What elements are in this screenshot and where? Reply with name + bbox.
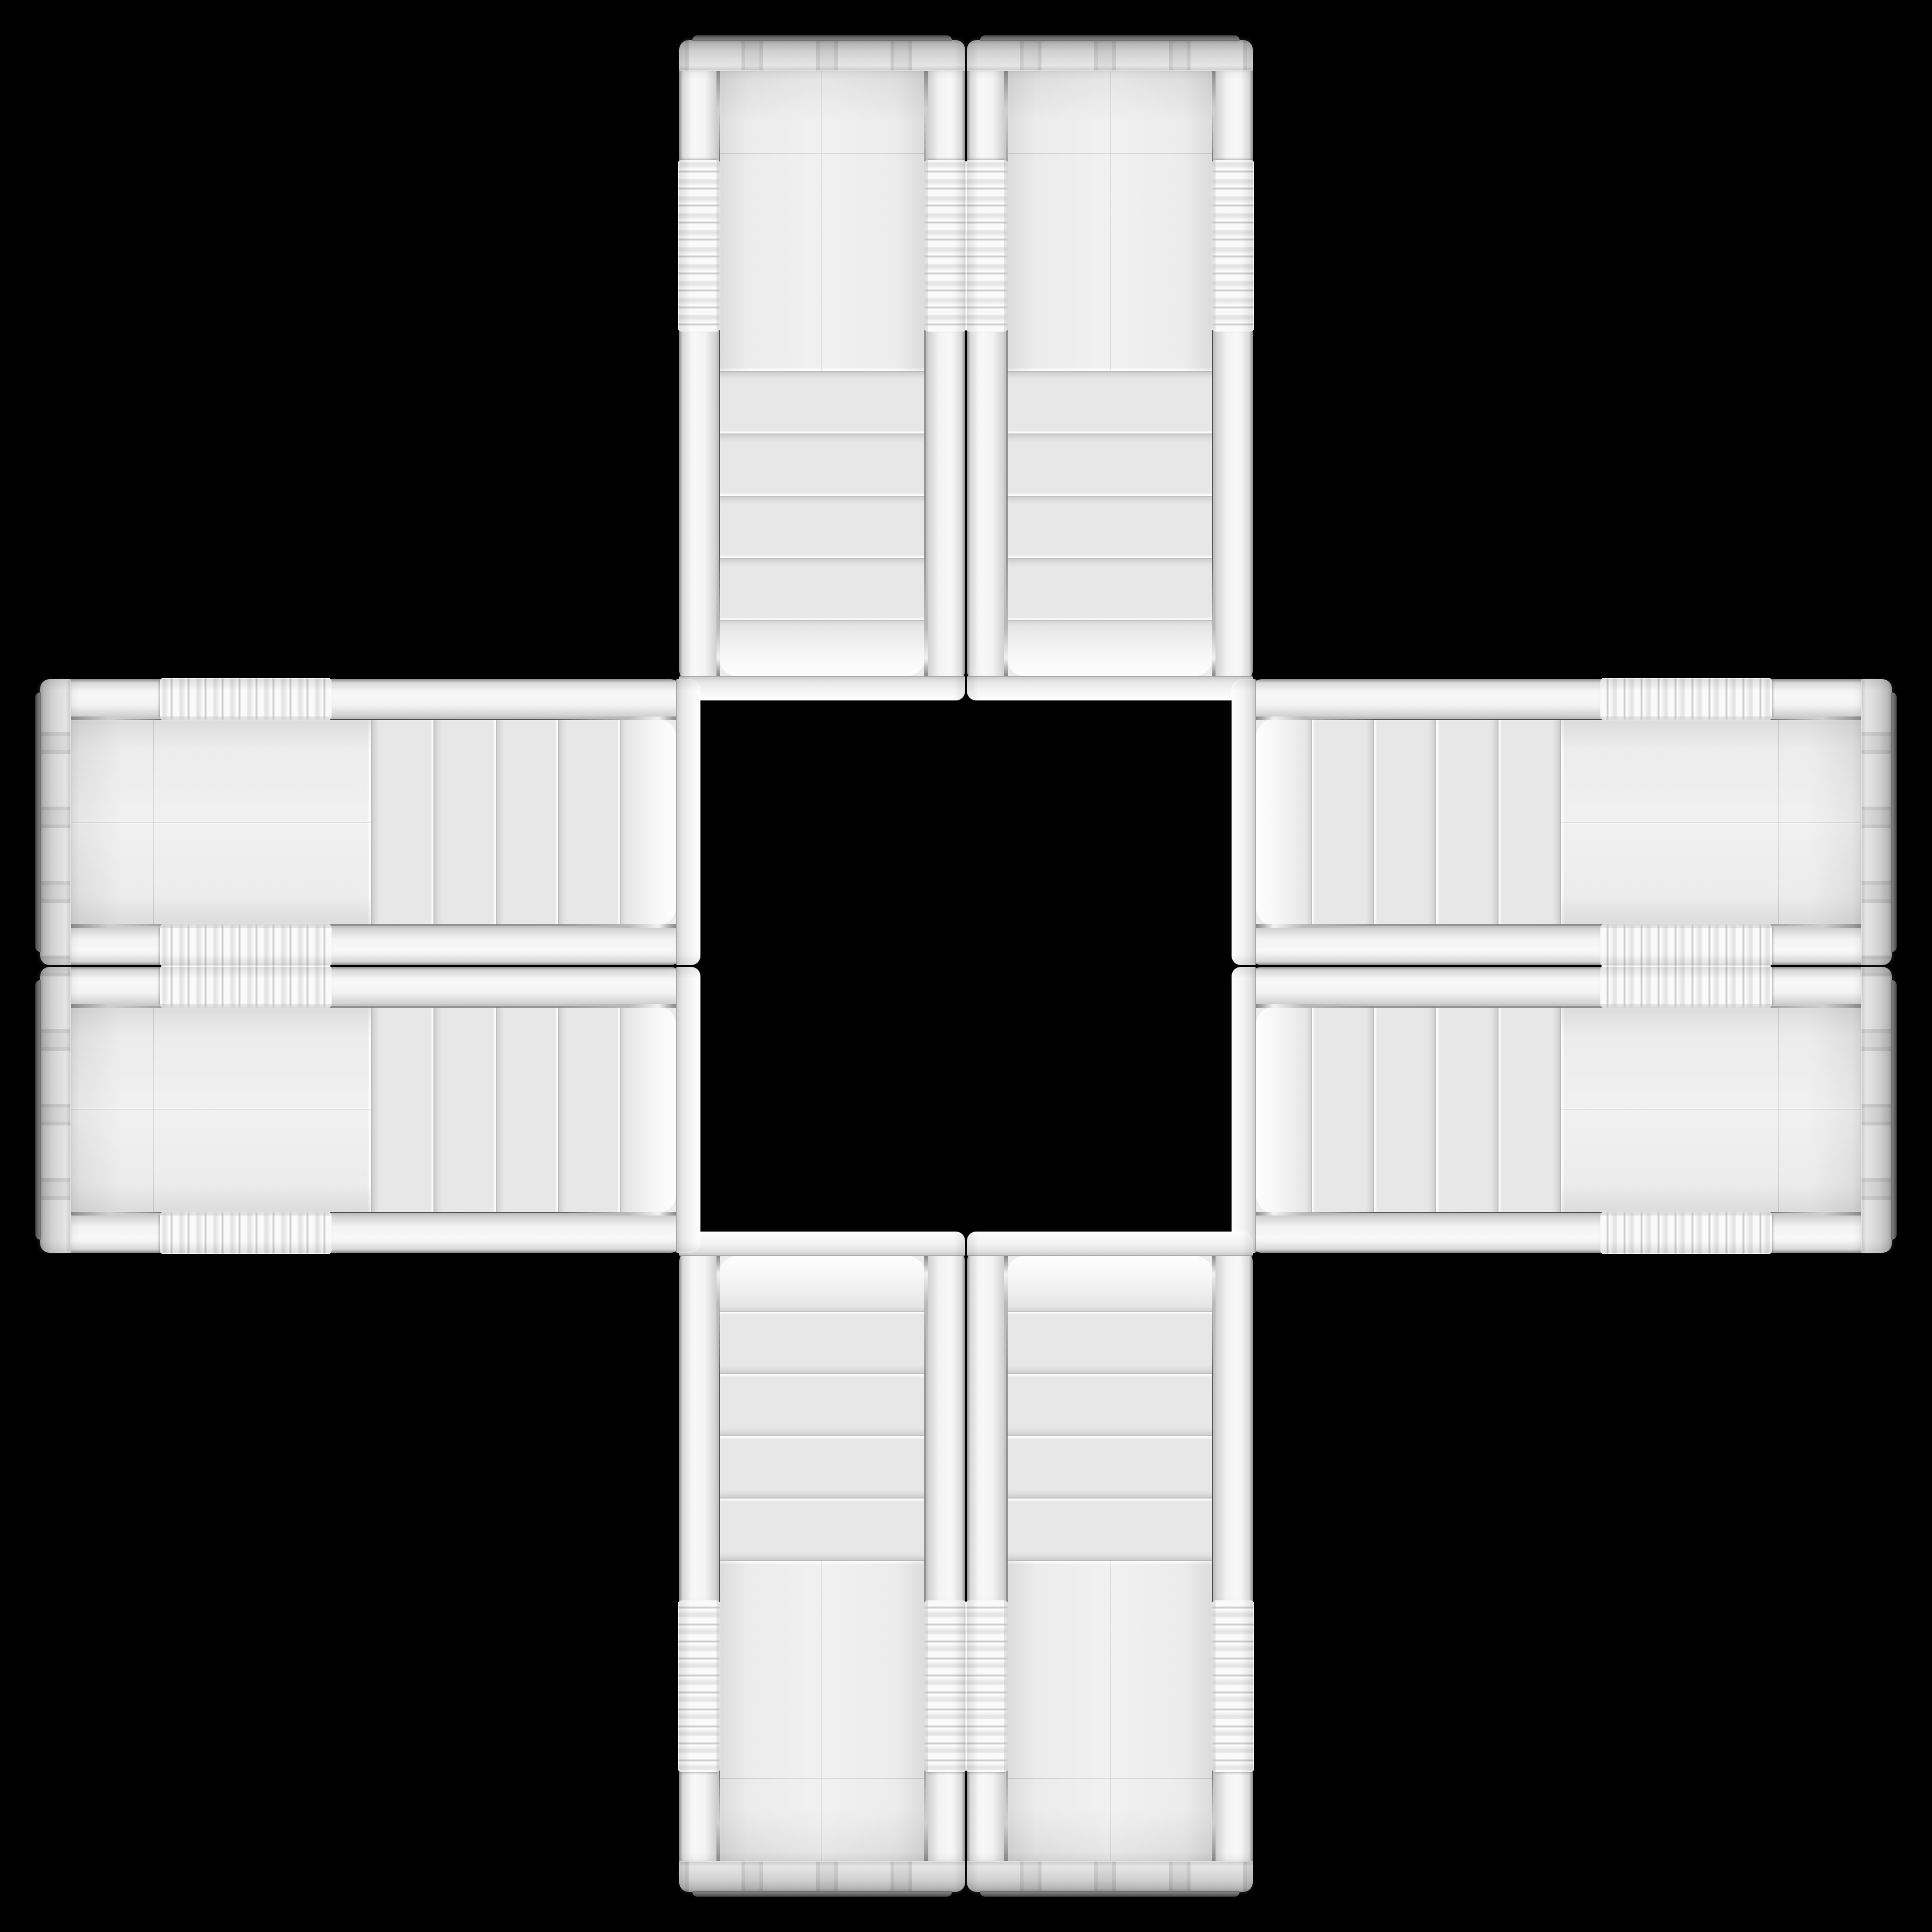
- mesh-seam-horizontal: [1778, 1008, 1779, 1212]
- mesh-front: COOLER MASTER: [720, 67, 924, 677]
- grip-ribs: [1212, 1600, 1254, 1772]
- mesh-bay-strip: [1008, 559, 1212, 621]
- side-rail-left: [925, 61, 965, 683]
- bottom-cap: [679, 40, 965, 71]
- mesh-bay-strip: [434, 720, 497, 924]
- mesh-bay-strip: [1008, 372, 1212, 434]
- top-cap: [679, 676, 965, 700]
- mesh-bay-strip: [1435, 720, 1498, 924]
- mesh-bay-strip: [720, 1435, 924, 1498]
- grip-ribs: [160, 924, 332, 966]
- grip-ribs: [160, 678, 332, 720]
- mesh-front: COOLER MASTER: [1008, 67, 1212, 677]
- mesh-top-curve: [720, 621, 924, 677]
- top-cap: [1232, 679, 1256, 965]
- case-panel-bottom-right: COOLER MASTER: [967, 1232, 1253, 1892]
- side-rail-right: [1249, 925, 1871, 965]
- grip-ribs: [160, 1212, 332, 1254]
- side-rail-left: [967, 61, 1007, 683]
- mesh-bay-strip: [720, 1373, 924, 1435]
- bottom-cap: [40, 967, 71, 1253]
- mesh-bay-strip: [1498, 720, 1560, 924]
- mesh-front: COOLER MASTER: [1255, 720, 1865, 924]
- mesh-bay-strip: [1008, 1311, 1212, 1373]
- mesh-bay-strip: [434, 1008, 497, 1212]
- chrome-trim-right: [716, 1255, 720, 1865]
- mesh-seam-vertical: [1110, 1561, 1111, 1865]
- chrome-trim-right: [716, 67, 720, 677]
- side-rail-right: [1213, 61, 1253, 683]
- mesh-bay-strip: [1373, 720, 1435, 924]
- bottom-cap-shadow: [35, 692, 41, 952]
- mesh-bay-strip: [1373, 1008, 1435, 1212]
- mesh-bay-strip: [1311, 1008, 1373, 1212]
- mesh-bay-strip: [1008, 497, 1212, 559]
- case-front-panel: COOLER MASTER: [967, 1232, 1253, 1892]
- mesh-top-curve: [621, 1008, 677, 1212]
- mesh-top-curve: [621, 720, 677, 924]
- mesh-bay-strip: [559, 720, 621, 924]
- mesh-bay-strip: [1008, 434, 1212, 497]
- chrome-trim-left: [67, 1212, 677, 1216]
- chrome-trim-left: [67, 716, 677, 720]
- case-front-panel: COOLER MASTER: [40, 679, 700, 965]
- mesh-top-curve: [1255, 720, 1311, 924]
- mesh-front: COOLER MASTER: [720, 1255, 924, 1865]
- mesh-lower-panel: COOLER MASTER: [1560, 1008, 1865, 1212]
- case-front-panel: COOLER MASTER: [40, 967, 700, 1253]
- top-cap: [1232, 967, 1256, 1253]
- collage-canvas: COOLER MASTER: [0, 0, 1932, 1932]
- side-rail-right: [679, 61, 719, 683]
- chrome-trim-right: [67, 924, 677, 928]
- mesh-seam-vertical: [821, 67, 822, 371]
- chrome-trim-left: [1004, 1255, 1008, 1865]
- side-rail-right: [1213, 1249, 1253, 1871]
- mesh-seam-horizontal: [720, 153, 924, 154]
- bottom-cap: [1861, 967, 1892, 1253]
- bottom-cap-shadow: [980, 1891, 1240, 1897]
- bottom-cap: [967, 40, 1253, 71]
- mesh-front: COOLER MASTER: [1008, 1255, 1212, 1865]
- side-rail-left: [1249, 1213, 1871, 1253]
- case-panel-right-bottom: COOLER MASTER: [1232, 967, 1892, 1253]
- mesh-top-curve: [1255, 1008, 1311, 1212]
- mesh-bay-strip: [720, 497, 924, 559]
- case-front-panel: COOLER MASTER: [1232, 967, 1892, 1253]
- mesh-top-curve: [1008, 1255, 1212, 1311]
- mesh-lower-panel: COOLER MASTER: [67, 720, 372, 924]
- side-rail-right: [1249, 967, 1871, 1007]
- grip-ribs: [678, 1600, 720, 1772]
- chrome-trim-right: [1255, 924, 1865, 928]
- bottom-cap: [679, 1861, 965, 1892]
- grip-ribs: [966, 160, 1008, 332]
- mesh-lower-panel: COOLER MASTER: [720, 67, 924, 372]
- chrome-trim-right: [1212, 1255, 1216, 1865]
- mesh-bay-strip: [497, 720, 559, 924]
- chrome-trim-right: [1255, 1004, 1865, 1008]
- mesh-bay-strip: [720, 1498, 924, 1560]
- mesh-bay-strip: [720, 1311, 924, 1373]
- grip-ribs: [924, 1600, 966, 1772]
- top-cap: [676, 679, 700, 965]
- mesh-seam-horizontal: [153, 720, 154, 924]
- mesh-bay-strip: [497, 1008, 559, 1212]
- bottom-cap: [967, 1861, 1253, 1892]
- grip-ribs: [1600, 966, 1772, 1008]
- case-panel-bottom-left: COOLER MASTER: [679, 1232, 965, 1892]
- chrome-trim-left: [1255, 716, 1865, 720]
- mesh-seam-horizontal: [1008, 153, 1212, 154]
- mesh-seam-vertical: [67, 822, 371, 823]
- case-panel-left-bottom: COOLER MASTER: [40, 967, 700, 1253]
- mesh-bay-strip: [559, 1008, 621, 1212]
- grip-ribs: [966, 1600, 1008, 1772]
- chrome-trim-left: [1004, 67, 1008, 677]
- grip-ribs: [1600, 678, 1772, 720]
- mesh-bay-strip: [720, 559, 924, 621]
- top-cap: [679, 1232, 965, 1256]
- mesh-seam-vertical: [1561, 1109, 1865, 1110]
- chrome-trim-left: [924, 67, 928, 677]
- bottom-cap-shadow: [692, 35, 952, 41]
- mesh-seam-vertical: [1110, 67, 1111, 371]
- chrome-trim-right: [1212, 67, 1216, 677]
- chrome-trim-left: [1255, 1212, 1865, 1216]
- case-panel-left-top: COOLER MASTER: [40, 679, 700, 965]
- mesh-bay-strip: [1008, 1373, 1212, 1435]
- mesh-bay-strip: [1311, 720, 1373, 924]
- bottom-cap-shadow: [692, 1891, 952, 1897]
- side-rail-right: [679, 1249, 719, 1871]
- side-rail-right: [61, 967, 683, 1007]
- bottom-cap: [40, 679, 71, 965]
- mesh-bay-strip: [1435, 1008, 1498, 1212]
- top-cap: [676, 967, 700, 1253]
- case-panel-right-top: COOLER MASTER: [1232, 679, 1892, 965]
- mesh-bay-strip: [720, 372, 924, 434]
- mesh-seam-vertical: [1561, 822, 1865, 823]
- grip-ribs: [1600, 924, 1772, 966]
- grip-ribs: [1600, 1212, 1772, 1254]
- case-front-panel: COOLER MASTER: [1232, 679, 1892, 965]
- mesh-bay-strip: [372, 720, 434, 924]
- grip-ribs: [924, 160, 966, 332]
- chrome-trim-right: [67, 1004, 677, 1008]
- side-rail-left: [925, 1249, 965, 1871]
- mesh-bay-strip: [1498, 1008, 1560, 1212]
- mesh-front: COOLER MASTER: [1255, 1008, 1865, 1212]
- mesh-seam-vertical: [821, 1561, 822, 1865]
- top-cap: [967, 676, 1253, 700]
- mesh-seam-horizontal: [153, 1008, 154, 1212]
- mesh-front: COOLER MASTER: [67, 1008, 677, 1212]
- side-rail-left: [967, 1249, 1007, 1871]
- bottom-cap-shadow: [1891, 692, 1897, 952]
- case-front-panel: COOLER MASTER: [967, 40, 1253, 700]
- side-rail-right: [61, 925, 683, 965]
- mesh-seam-vertical: [67, 1109, 371, 1110]
- grip-ribs: [1212, 160, 1254, 332]
- mesh-seam-horizontal: [1008, 1778, 1212, 1779]
- side-rail-left: [61, 1213, 683, 1253]
- top-cap: [967, 1232, 1253, 1256]
- mesh-lower-panel: COOLER MASTER: [67, 1008, 372, 1212]
- mesh-lower-panel: COOLER MASTER: [1008, 1560, 1212, 1865]
- chrome-trim-left: [924, 1255, 928, 1865]
- mesh-top-curve: [720, 1255, 924, 1311]
- bottom-cap-shadow: [1891, 980, 1897, 1240]
- mesh-seam-horizontal: [720, 1778, 924, 1779]
- mesh-bay-strip: [1008, 1435, 1212, 1498]
- mesh-lower-panel: COOLER MASTER: [720, 1560, 924, 1865]
- bottom-cap-shadow: [35, 980, 41, 1240]
- case-panel-top-right: COOLER MASTER: [967, 40, 1253, 700]
- case-front-panel: COOLER MASTER: [679, 1232, 965, 1892]
- bottom-cap-shadow: [980, 35, 1240, 41]
- bottom-cap: [1861, 679, 1892, 965]
- side-rail-left: [61, 679, 683, 719]
- side-rail-left: [1249, 679, 1871, 719]
- mesh-front: COOLER MASTER: [67, 720, 677, 924]
- mesh-lower-panel: COOLER MASTER: [1560, 720, 1865, 924]
- mesh-bay-strip: [372, 1008, 434, 1212]
- case-panel-top-left: COOLER MASTER: [679, 40, 965, 700]
- mesh-seam-horizontal: [1778, 720, 1779, 924]
- grip-ribs: [678, 160, 720, 332]
- mesh-top-curve: [1008, 621, 1212, 677]
- case-front-panel: COOLER MASTER: [679, 40, 965, 700]
- mesh-lower-panel: COOLER MASTER: [1008, 67, 1212, 372]
- mesh-bay-strip: [720, 434, 924, 497]
- mesh-bay-strip: [1008, 1498, 1212, 1560]
- grip-ribs: [160, 966, 332, 1008]
